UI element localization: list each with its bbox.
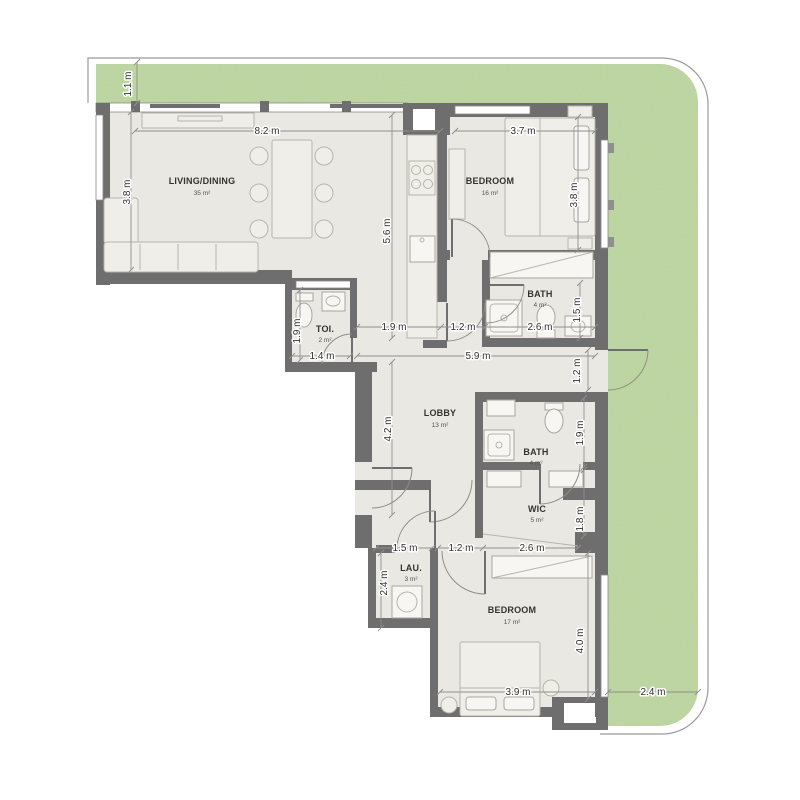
wardrobe-bedroom1 bbox=[449, 149, 465, 219]
room-area-living-dining: 35 m² bbox=[194, 190, 211, 197]
room-area-bedroom1: 16 m² bbox=[482, 190, 499, 197]
closet-wic bbox=[487, 471, 521, 487]
dim-bedroom2-height: 4.0 m bbox=[575, 628, 586, 653]
wall-tab bbox=[608, 237, 614, 247]
toi-sink bbox=[322, 292, 345, 311]
window-bedroom1-top bbox=[455, 106, 530, 114]
room-label-bedroom1: BEDROOM bbox=[466, 176, 514, 186]
chair-icon bbox=[250, 184, 268, 202]
wall-pier bbox=[342, 101, 351, 112]
dim-lobby-height: 4.2 m bbox=[383, 416, 394, 441]
dim-toi-height: 1.9 m bbox=[292, 318, 303, 343]
chair-icon bbox=[315, 184, 333, 202]
pillow-icon bbox=[574, 126, 589, 170]
wall-lobby-south bbox=[355, 480, 430, 490]
sofa-bottom bbox=[104, 242, 258, 272]
room-label-bath1: BATH bbox=[527, 289, 552, 299]
pillow-icon bbox=[504, 697, 534, 710]
nightstand bbox=[568, 238, 592, 249]
room-label-bath2: BATH bbox=[523, 447, 548, 457]
window-toi-top bbox=[296, 281, 351, 288]
wall-wic-east-stub bbox=[563, 488, 595, 500]
wall-toi-south bbox=[285, 362, 377, 372]
dim-bath2-height: 1.9 m bbox=[575, 420, 586, 445]
window-bedroom2-east bbox=[601, 575, 608, 697]
wall-tab bbox=[608, 200, 614, 210]
chair-icon bbox=[315, 220, 333, 238]
dim-bedroom1-width: 3.7 m bbox=[510, 126, 535, 137]
cabinet-bath2 bbox=[487, 400, 515, 416]
dim-bedroom1-height: 3.8 m bbox=[569, 182, 580, 207]
column-opening bbox=[564, 703, 596, 723]
room-area-lau: 3 m² bbox=[405, 576, 419, 583]
dim-wic-width: 2.6 m bbox=[519, 543, 544, 554]
toilet-icon bbox=[545, 409, 563, 433]
room-label-lau: LAU. bbox=[400, 563, 422, 573]
window-living-left bbox=[96, 115, 103, 200]
dim-bath1-height: 1.5 m bbox=[572, 297, 583, 322]
room-area-toi: 2 m² bbox=[319, 337, 333, 344]
wall-bath2-west bbox=[475, 392, 483, 538]
wall-corridor-stub bbox=[423, 340, 447, 348]
wall-lobby-west-stub bbox=[355, 515, 372, 548]
dim-kitchen-height: 5.6 m bbox=[382, 218, 393, 243]
dim-living-height: 3.8 m bbox=[122, 179, 133, 204]
chair-icon bbox=[250, 220, 268, 238]
dim-hall-length: 5.9 m bbox=[465, 351, 490, 362]
dim-living-width: 8.2 m bbox=[254, 126, 279, 137]
room-area-bedroom2: 17 m² bbox=[504, 619, 521, 626]
toilet-tank bbox=[296, 293, 313, 301]
wall-tab bbox=[608, 143, 614, 153]
dim-lau-height: 2.4 m bbox=[379, 570, 390, 595]
wall-lobby-west bbox=[355, 372, 372, 462]
floor-plan-drawing: 8.2 m 3.7 m 1.9 m 1.2 m 2.6 m 1.4 m 5.9 … bbox=[0, 0, 800, 800]
wall-toi-east bbox=[350, 278, 357, 338]
dining-table bbox=[272, 140, 312, 238]
wall-pier bbox=[260, 101, 269, 112]
wall-bedroom2-west bbox=[430, 548, 438, 717]
dim-exit-door-width: 1.2 m bbox=[572, 358, 583, 383]
room-area-bath2: 4 m² bbox=[530, 460, 544, 467]
dim-hall2-width: 1.2 m bbox=[448, 543, 473, 554]
dim-terrace-right-width: 2.4 m bbox=[640, 687, 665, 698]
pillow-icon bbox=[466, 697, 496, 710]
dim-corridor1-width: 1.2 m bbox=[450, 322, 475, 333]
dim-lau-width: 1.5 m bbox=[392, 543, 417, 554]
wall-toi-west bbox=[285, 278, 292, 372]
closet-wic bbox=[549, 471, 583, 487]
dim-wic-height: 1.8 m bbox=[575, 506, 586, 531]
room-label-lobby: LOBBY bbox=[424, 408, 457, 418]
room-label-wic: WIC bbox=[528, 504, 546, 514]
dim-terrace-top-height: 1.1 m bbox=[123, 71, 134, 96]
dim-bath1-width: 2.6 m bbox=[527, 322, 552, 333]
dim-toi-width: 1.4 m bbox=[309, 351, 334, 362]
window-slider-segment bbox=[330, 104, 405, 108]
shower-bath1 bbox=[486, 300, 522, 336]
nightstand-round bbox=[543, 680, 559, 696]
chair-icon bbox=[250, 147, 268, 165]
wall-lau-west bbox=[368, 548, 376, 628]
chair-icon bbox=[315, 147, 333, 165]
dim-bedroom2-width: 3.9 m bbox=[505, 687, 530, 698]
nightstand-round bbox=[441, 697, 457, 713]
room-area-lobby: 13 m² bbox=[432, 422, 449, 429]
room-label-living-dining: LIVING/DINING bbox=[169, 176, 236, 186]
wall-lau-south bbox=[368, 618, 438, 628]
room-label-bedroom2: BEDROOM bbox=[488, 605, 536, 615]
kitchen-sink bbox=[410, 236, 435, 262]
room-area-wic: 5 m² bbox=[531, 517, 545, 524]
floor-plan-page: 8.2 m 3.7 m 1.9 m 1.2 m 2.6 m 1.4 m 5.9 … bbox=[0, 0, 800, 800]
window-bedroom1-east bbox=[601, 140, 608, 248]
dim-passage-width: 1.9 m bbox=[381, 322, 406, 333]
room-area-bath1: 4 m² bbox=[534, 302, 548, 309]
room-label-toi: TOI. bbox=[316, 324, 334, 334]
window-slider-segment bbox=[150, 104, 220, 108]
